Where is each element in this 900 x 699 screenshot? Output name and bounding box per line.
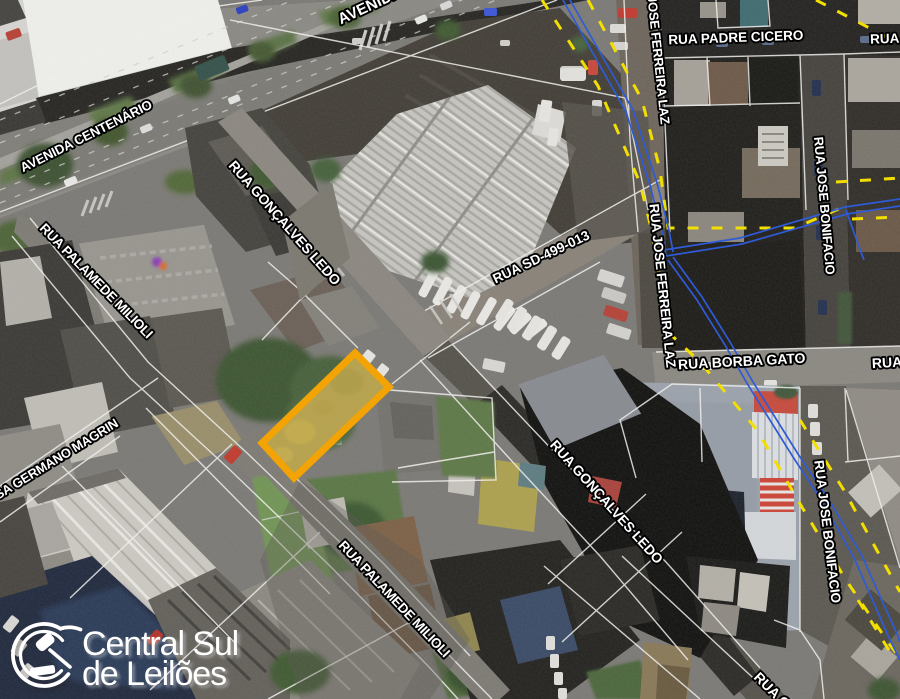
svg-text:RUA B: RUA B [871, 353, 900, 371]
svg-text:de Leilões: de Leilões [82, 655, 226, 693]
svg-text:RUA P: RUA P [870, 30, 900, 46]
